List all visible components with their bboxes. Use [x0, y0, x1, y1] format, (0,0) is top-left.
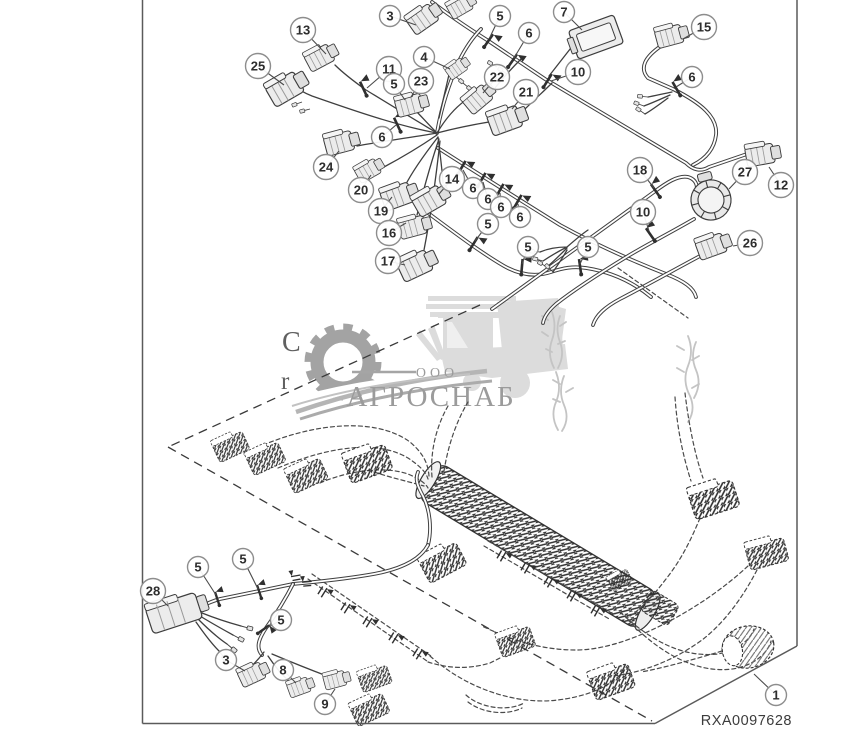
callout-10: 10 [551, 60, 591, 85]
connector [283, 453, 328, 493]
svg-text:15: 15 [697, 20, 711, 35]
svg-text:3: 3 [222, 653, 229, 668]
svg-text:5: 5 [524, 240, 531, 255]
connector-13 [302, 38, 341, 72]
connector [356, 661, 393, 693]
connector-24 [322, 125, 362, 156]
connector-27-round [684, 168, 735, 225]
svg-text:5: 5 [584, 240, 591, 255]
connector [244, 438, 287, 476]
callout-14: 14 [439, 167, 465, 195]
svg-text:6: 6 [378, 130, 385, 145]
svg-text:13: 13 [296, 23, 310, 38]
callout-9: 9 [315, 689, 336, 715]
callout-18: 18 [628, 158, 655, 189]
connector [743, 532, 789, 570]
ooo-text: ООО [416, 366, 458, 381]
svg-text:20: 20 [354, 183, 368, 198]
svg-text:27: 27 [738, 165, 752, 180]
upper-harness [263, 0, 783, 325]
connector-15 [653, 19, 690, 48]
svg-text:21: 21 [519, 85, 533, 100]
callout-1: 1 [754, 674, 787, 706]
svg-text:12: 12 [774, 178, 788, 193]
connector [210, 427, 250, 463]
brand-text: АГРОСНАБ [346, 381, 515, 413]
svg-text:6: 6 [469, 181, 476, 196]
svg-text:9: 9 [321, 697, 328, 712]
svg-text:23: 23 [414, 74, 428, 89]
svg-text:26: 26 [743, 236, 757, 251]
svg-text:19: 19 [374, 204, 388, 219]
figure-id-label: RXA0097628 [701, 713, 792, 729]
connector-17 [394, 243, 440, 283]
svg-text:6: 6 [688, 70, 695, 85]
callout-26: 26 [733, 231, 763, 256]
callout-7: 7 [554, 2, 583, 31]
svg-text:28: 28 [146, 584, 160, 599]
callout-22: 22 [483, 65, 510, 94]
svg-text:3: 3 [386, 9, 393, 24]
connector [348, 689, 391, 727]
svg-text:5: 5 [390, 77, 397, 92]
callout-5: 5 [188, 557, 217, 596]
callout-12: 12 [769, 167, 794, 198]
svg-text:5: 5 [194, 560, 201, 575]
svg-text:1: 1 [772, 688, 779, 703]
connector-9 [322, 666, 352, 690]
svg-text:14: 14 [445, 172, 460, 187]
connector-4 [443, 53, 472, 80]
callout-15: 15 [683, 15, 717, 40]
svg-text:5: 5 [277, 613, 284, 628]
callout-24: 24 [314, 151, 340, 180]
svg-text:17: 17 [381, 254, 395, 269]
callout-21: 21 [512, 80, 539, 110]
connector-3-lower [235, 656, 271, 687]
svg-text:5: 5 [239, 552, 246, 567]
callout-6: 6 [372, 125, 397, 148]
svg-text:22: 22 [490, 70, 504, 85]
connector-26 [693, 227, 734, 260]
svg-text:6: 6 [516, 210, 523, 225]
round-connector [719, 622, 778, 672]
callout-6: 6 [514, 23, 540, 59]
svg-text:6: 6 [497, 200, 504, 215]
svg-text:5: 5 [496, 9, 503, 24]
callout-27: 27 [729, 160, 758, 190]
svg-text:4: 4 [420, 50, 428, 65]
svg-text:7: 7 [560, 5, 567, 20]
connector [341, 439, 393, 484]
callout-13: 13 [291, 18, 327, 55]
connector [416, 537, 467, 583]
svg-text:10: 10 [571, 65, 585, 80]
callout-5: 5 [490, 6, 511, 38]
connector [686, 474, 740, 520]
svg-text:18: 18 [633, 163, 647, 178]
svg-text:25: 25 [251, 59, 265, 74]
watermark: ООО АГРОСНАБ C r [281, 296, 699, 431]
callout-5: 5 [475, 214, 499, 242]
wheat-ears [542, 312, 699, 431]
connector [586, 658, 636, 701]
connector [494, 622, 536, 658]
callout-5: 5 [384, 74, 406, 101]
figure-canvas: ООО АГРОСНАБ C r [0, 0, 841, 731]
partial-letter-r: r [281, 368, 290, 395]
svg-text:16: 16 [382, 226, 396, 241]
svg-text:6: 6 [525, 26, 532, 41]
callout-25: 25 [246, 54, 285, 86]
callout-5: 5 [233, 549, 259, 590]
partial-letter-c: C [282, 327, 301, 358]
svg-text:5: 5 [484, 217, 491, 232]
svg-text:24: 24 [319, 160, 334, 175]
parts-diagram-page: ООО АГРОСНАБ C r [0, 0, 841, 731]
svg-text:8: 8 [279, 663, 286, 678]
svg-text:10: 10 [636, 205, 650, 220]
callout-28: 28 [141, 579, 169, 607]
